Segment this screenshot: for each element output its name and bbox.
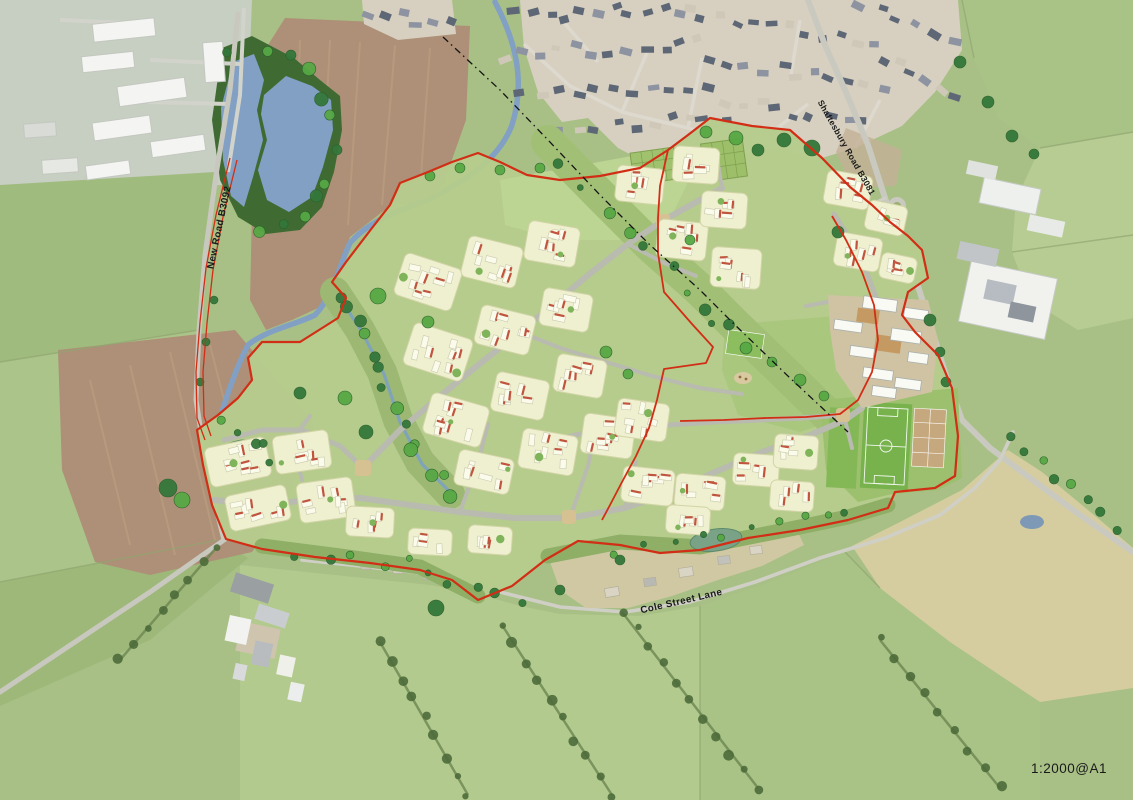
play-area: [734, 372, 752, 384]
housing-parcel: [614, 398, 671, 443]
housing-parcel: [467, 524, 513, 555]
tennis-courts: [912, 408, 947, 468]
housing-parcel: [272, 429, 333, 474]
scale-label: 1:2000@A1: [1031, 761, 1107, 776]
field-pond: [1020, 515, 1044, 529]
football-pitch: [860, 402, 912, 490]
housing-parcel: [407, 528, 452, 556]
housing-parcel: [538, 287, 594, 333]
housing-parcel: [769, 480, 815, 513]
housing-parcel: [665, 504, 711, 535]
housing-parcel: [700, 190, 748, 229]
housing-parcel: [710, 246, 763, 289]
masterplan-screenshot: New Road B3092 Shaftesbury Road B3081 Co…: [0, 0, 1133, 800]
housing-parcel: [523, 220, 581, 268]
masterplan-map: New Road B3092 Shaftesbury Road B3081 Co…: [0, 0, 1133, 800]
housing-parcel: [552, 353, 608, 399]
housing-parcel: [773, 434, 819, 471]
housing-parcel: [345, 506, 395, 538]
housing-parcel: [655, 218, 709, 261]
housing-parcel: [672, 145, 720, 184]
